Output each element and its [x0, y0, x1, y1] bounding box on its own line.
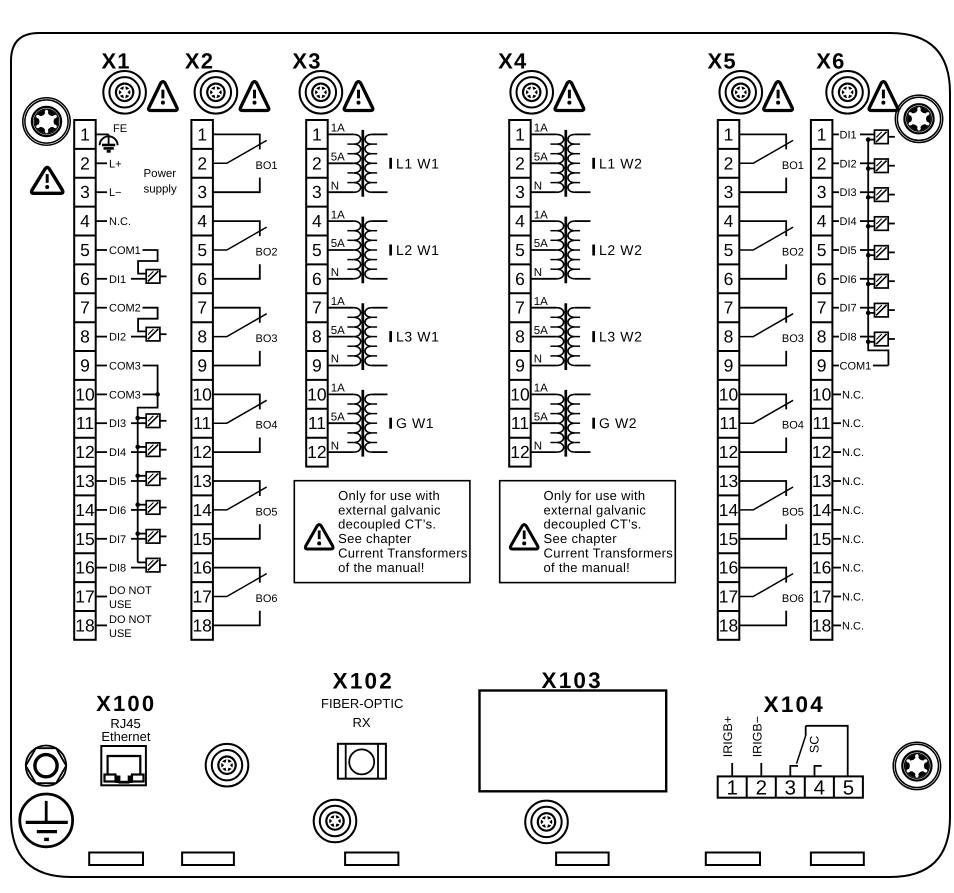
- svg-text:6: 6: [724, 269, 734, 289]
- svg-text:X3: X3: [292, 49, 321, 74]
- svg-text:BO2: BO2: [256, 247, 278, 259]
- svg-text:N: N: [331, 267, 339, 279]
- svg-text:7: 7: [515, 298, 525, 318]
- svg-text:decoupled CT’s.: decoupled CT’s.: [544, 517, 642, 532]
- svg-text:N.C.: N.C.: [842, 447, 864, 459]
- svg-text:12: 12: [719, 442, 738, 462]
- svg-text:16: 16: [75, 558, 94, 578]
- svg-text:8: 8: [312, 327, 322, 347]
- svg-text:10: 10: [75, 384, 95, 404]
- svg-text:7: 7: [724, 298, 734, 318]
- svg-text:2: 2: [515, 153, 525, 173]
- svg-text:9: 9: [724, 356, 734, 376]
- svg-text:Only for use with: Only for use with: [544, 488, 646, 503]
- svg-text:2: 2: [80, 153, 90, 173]
- svg-text:17: 17: [719, 587, 738, 607]
- svg-text:7: 7: [312, 298, 322, 318]
- svg-text:7: 7: [80, 298, 90, 318]
- svg-text:4: 4: [197, 211, 207, 231]
- svg-text:decoupled CT’s.: decoupled CT’s.: [338, 517, 436, 532]
- svg-text:L3 W1: L3 W1: [396, 329, 439, 345]
- svg-text:1A: 1A: [534, 296, 548, 308]
- svg-text:5: 5: [312, 240, 322, 260]
- svg-text:3: 3: [724, 182, 734, 202]
- svg-text:DI8: DI8: [109, 563, 126, 575]
- svg-text:11: 11: [813, 413, 831, 433]
- svg-text:18: 18: [719, 615, 738, 635]
- svg-text:G W2: G W2: [599, 415, 637, 431]
- svg-text:18: 18: [192, 615, 211, 635]
- svg-text:9: 9: [312, 356, 322, 376]
- svg-text:1A: 1A: [534, 123, 548, 135]
- svg-text:8: 8: [197, 327, 207, 347]
- svg-text:Current Transformers: Current Transformers: [544, 545, 674, 560]
- svg-text:6: 6: [197, 269, 207, 289]
- svg-text:1: 1: [80, 124, 90, 144]
- svg-text:1A: 1A: [534, 383, 548, 395]
- svg-text:10: 10: [192, 384, 212, 404]
- svg-text:N: N: [534, 354, 542, 366]
- svg-text:BO5: BO5: [256, 506, 278, 518]
- svg-text:5: 5: [724, 240, 734, 260]
- svg-text:USE: USE: [109, 599, 132, 611]
- svg-text:external galvanic: external galvanic: [338, 502, 441, 517]
- svg-text:DI7: DI7: [840, 303, 857, 315]
- svg-text:DI3: DI3: [109, 418, 126, 430]
- svg-text:17: 17: [75, 587, 94, 607]
- svg-text:Power: Power: [144, 168, 177, 180]
- svg-text:5A: 5A: [331, 152, 345, 164]
- svg-text:DI7: DI7: [109, 534, 126, 546]
- svg-text:11: 11: [511, 413, 529, 433]
- svg-text:SC: SC: [808, 736, 822, 753]
- svg-text:5A: 5A: [331, 411, 345, 423]
- svg-text:X4: X4: [498, 49, 527, 74]
- svg-text:3: 3: [817, 182, 827, 202]
- svg-text:5A: 5A: [331, 325, 345, 337]
- svg-text:16: 16: [812, 558, 831, 578]
- svg-text:L−: L−: [109, 187, 122, 199]
- svg-text:1A: 1A: [331, 383, 345, 395]
- svg-text:DI4: DI4: [109, 447, 126, 459]
- svg-text:BO2: BO2: [782, 247, 804, 259]
- svg-text:IRIGB+: IRIGB+: [721, 716, 735, 757]
- svg-text:L2 W1: L2 W1: [396, 242, 439, 258]
- svg-text:6: 6: [312, 269, 322, 289]
- svg-text:15: 15: [75, 529, 94, 549]
- svg-text:15: 15: [192, 529, 211, 549]
- svg-text:N.C.: N.C.: [842, 592, 864, 604]
- svg-text:14: 14: [812, 500, 832, 520]
- svg-text:N.C.: N.C.: [842, 563, 864, 575]
- svg-text:X104: X104: [764, 692, 825, 717]
- svg-text:DO NOT: DO NOT: [109, 614, 152, 626]
- svg-text:DI8: DI8: [840, 332, 857, 344]
- svg-text:6: 6: [817, 269, 827, 289]
- svg-text:external galvanic: external galvanic: [544, 502, 647, 517]
- svg-text:of the manual!: of the manual!: [544, 560, 631, 575]
- svg-text:2: 2: [197, 153, 207, 173]
- svg-text:15: 15: [719, 529, 738, 549]
- svg-text:11: 11: [308, 413, 326, 433]
- svg-text:N: N: [331, 440, 339, 452]
- svg-text:5: 5: [817, 240, 827, 260]
- svg-text:5: 5: [197, 240, 207, 260]
- svg-text:1: 1: [726, 777, 737, 800]
- svg-text:4: 4: [515, 211, 525, 231]
- svg-text:3: 3: [80, 182, 90, 202]
- svg-text:N.C.: N.C.: [842, 476, 864, 488]
- svg-text:2: 2: [312, 153, 322, 173]
- svg-text:N.C.: N.C.: [842, 620, 864, 632]
- svg-text:13: 13: [812, 471, 831, 491]
- svg-text:N.C.: N.C.: [842, 418, 864, 430]
- svg-text:BO3: BO3: [256, 333, 278, 345]
- svg-text:L1 W2: L1 W2: [599, 155, 642, 171]
- svg-text:N.C.: N.C.: [842, 505, 864, 517]
- svg-text:N.C.: N.C.: [842, 534, 864, 546]
- svg-text:N.C.: N.C.: [109, 216, 131, 228]
- svg-text:12: 12: [307, 442, 326, 462]
- svg-text:12: 12: [75, 442, 94, 462]
- svg-text:2: 2: [724, 153, 734, 173]
- svg-text:supply: supply: [144, 184, 177, 196]
- svg-text:COM3: COM3: [109, 361, 141, 373]
- svg-text:BO6: BO6: [256, 593, 278, 605]
- svg-text:5A: 5A: [534, 152, 548, 164]
- svg-text:COM1: COM1: [109, 245, 141, 257]
- svg-text:DI4: DI4: [840, 216, 857, 228]
- svg-text:BO5: BO5: [782, 506, 804, 518]
- svg-text:COM3: COM3: [109, 389, 141, 401]
- svg-text:Only for use with: Only for use with: [338, 488, 440, 503]
- svg-text:5A: 5A: [331, 238, 345, 250]
- svg-text:RX: RX: [352, 715, 370, 730]
- svg-text:9: 9: [197, 356, 207, 376]
- svg-text:17: 17: [812, 587, 831, 607]
- svg-text:3: 3: [312, 182, 322, 202]
- svg-text:of the manual!: of the manual!: [338, 560, 425, 575]
- svg-text:16: 16: [192, 558, 211, 578]
- svg-text:1: 1: [724, 124, 734, 144]
- svg-text:X102: X102: [333, 669, 394, 694]
- svg-text:See chapter: See chapter: [338, 531, 412, 546]
- svg-text:11: 11: [193, 413, 211, 433]
- svg-text:13: 13: [719, 471, 738, 491]
- svg-text:14: 14: [192, 500, 212, 520]
- svg-text:DI6: DI6: [109, 505, 126, 517]
- svg-text:3: 3: [515, 182, 525, 202]
- svg-text:1A: 1A: [331, 209, 345, 221]
- svg-text:11: 11: [719, 413, 737, 433]
- svg-text:15: 15: [812, 529, 831, 549]
- svg-text:N: N: [331, 180, 339, 192]
- svg-text:DI2: DI2: [840, 158, 857, 170]
- svg-text:12: 12: [510, 442, 529, 462]
- svg-text:X100: X100: [96, 691, 156, 716]
- svg-text:N.C.: N.C.: [842, 389, 864, 401]
- svg-text:14: 14: [719, 500, 739, 520]
- svg-text:5: 5: [80, 240, 90, 260]
- svg-text:5A: 5A: [534, 411, 548, 423]
- svg-text:USE: USE: [109, 628, 132, 640]
- svg-text:IRIGB−: IRIGB−: [750, 716, 764, 757]
- svg-text:DI5: DI5: [840, 245, 857, 257]
- svg-text:10: 10: [812, 384, 832, 404]
- svg-text:X5: X5: [708, 49, 737, 74]
- svg-text:3: 3: [197, 182, 207, 202]
- svg-text:L1 W1: L1 W1: [396, 155, 439, 171]
- svg-text:2: 2: [817, 153, 827, 173]
- svg-text:2: 2: [756, 777, 767, 800]
- svg-text:12: 12: [812, 442, 831, 462]
- svg-text:13: 13: [192, 471, 211, 491]
- svg-text:8: 8: [515, 327, 525, 347]
- svg-text:9: 9: [817, 356, 827, 376]
- svg-text:Current Transformers: Current Transformers: [338, 545, 468, 560]
- svg-text:11: 11: [76, 413, 94, 433]
- svg-text:N: N: [331, 354, 339, 366]
- svg-text:Ethernet: Ethernet: [101, 729, 151, 744]
- svg-text:X6: X6: [816, 49, 845, 74]
- svg-text:4: 4: [724, 211, 734, 231]
- svg-text:16: 16: [719, 558, 738, 578]
- svg-text:BO4: BO4: [782, 420, 804, 432]
- svg-text:DO NOT: DO NOT: [109, 585, 152, 597]
- svg-text:DI6: DI6: [840, 274, 857, 286]
- svg-text:L3 W2: L3 W2: [599, 329, 642, 345]
- svg-text:X1: X1: [101, 49, 130, 74]
- svg-text:9: 9: [80, 356, 90, 376]
- svg-text:7: 7: [817, 298, 827, 318]
- svg-text:1: 1: [197, 124, 207, 144]
- svg-text:1A: 1A: [331, 296, 345, 308]
- svg-text:1: 1: [312, 124, 322, 144]
- svg-text:DI1: DI1: [109, 274, 126, 286]
- svg-text:FE: FE: [113, 123, 127, 135]
- svg-text:18: 18: [812, 615, 831, 635]
- svg-text:1A: 1A: [331, 123, 345, 135]
- svg-text:8: 8: [817, 327, 827, 347]
- svg-text:5: 5: [515, 240, 525, 260]
- svg-text:1: 1: [817, 124, 827, 144]
- svg-text:L+: L+: [109, 158, 122, 170]
- svg-text:BO6: BO6: [782, 593, 804, 605]
- svg-text:10: 10: [510, 384, 530, 404]
- svg-text:8: 8: [80, 327, 90, 347]
- svg-text:12: 12: [192, 442, 211, 462]
- svg-text:5A: 5A: [534, 325, 548, 337]
- svg-text:9: 9: [515, 356, 525, 376]
- svg-text:13: 13: [75, 471, 94, 491]
- svg-text:7: 7: [197, 298, 207, 318]
- svg-text:4: 4: [312, 211, 322, 231]
- svg-text:DI2: DI2: [109, 332, 126, 344]
- svg-text:FIBER-OPTIC: FIBER-OPTIC: [321, 696, 403, 711]
- svg-text:BO3: BO3: [782, 333, 804, 345]
- svg-text:5A: 5A: [534, 238, 548, 250]
- svg-text:18: 18: [75, 615, 94, 635]
- svg-text:COM1: COM1: [840, 361, 872, 373]
- svg-text:G W1: G W1: [396, 415, 434, 431]
- svg-text:3: 3: [785, 777, 796, 800]
- svg-text:N: N: [534, 180, 542, 192]
- svg-text:N: N: [534, 267, 542, 279]
- svg-text:N: N: [534, 440, 542, 452]
- svg-text:DI1: DI1: [840, 129, 857, 141]
- svg-text:See chapter: See chapter: [544, 531, 618, 546]
- svg-text:4: 4: [80, 211, 90, 231]
- svg-text:17: 17: [192, 587, 211, 607]
- svg-text:6: 6: [515, 269, 525, 289]
- svg-text:1: 1: [515, 124, 525, 144]
- svg-text:BO1: BO1: [256, 160, 278, 172]
- svg-text:DI5: DI5: [109, 476, 126, 488]
- svg-text:L2 W2: L2 W2: [599, 242, 642, 258]
- svg-text:5: 5: [843, 777, 854, 800]
- svg-text:COM2: COM2: [109, 303, 141, 315]
- svg-text:14: 14: [75, 500, 95, 520]
- svg-text:10: 10: [719, 384, 739, 404]
- svg-text:X103: X103: [542, 668, 603, 693]
- svg-text:BO4: BO4: [256, 420, 278, 432]
- svg-text:4: 4: [817, 211, 827, 231]
- svg-text:X2: X2: [185, 49, 214, 74]
- svg-text:6: 6: [80, 269, 90, 289]
- svg-text:4: 4: [814, 777, 825, 800]
- svg-text:1A: 1A: [534, 209, 548, 221]
- svg-text:BO1: BO1: [782, 160, 804, 172]
- svg-text:8: 8: [724, 327, 734, 347]
- svg-text:DI3: DI3: [840, 187, 857, 199]
- svg-text:10: 10: [307, 384, 327, 404]
